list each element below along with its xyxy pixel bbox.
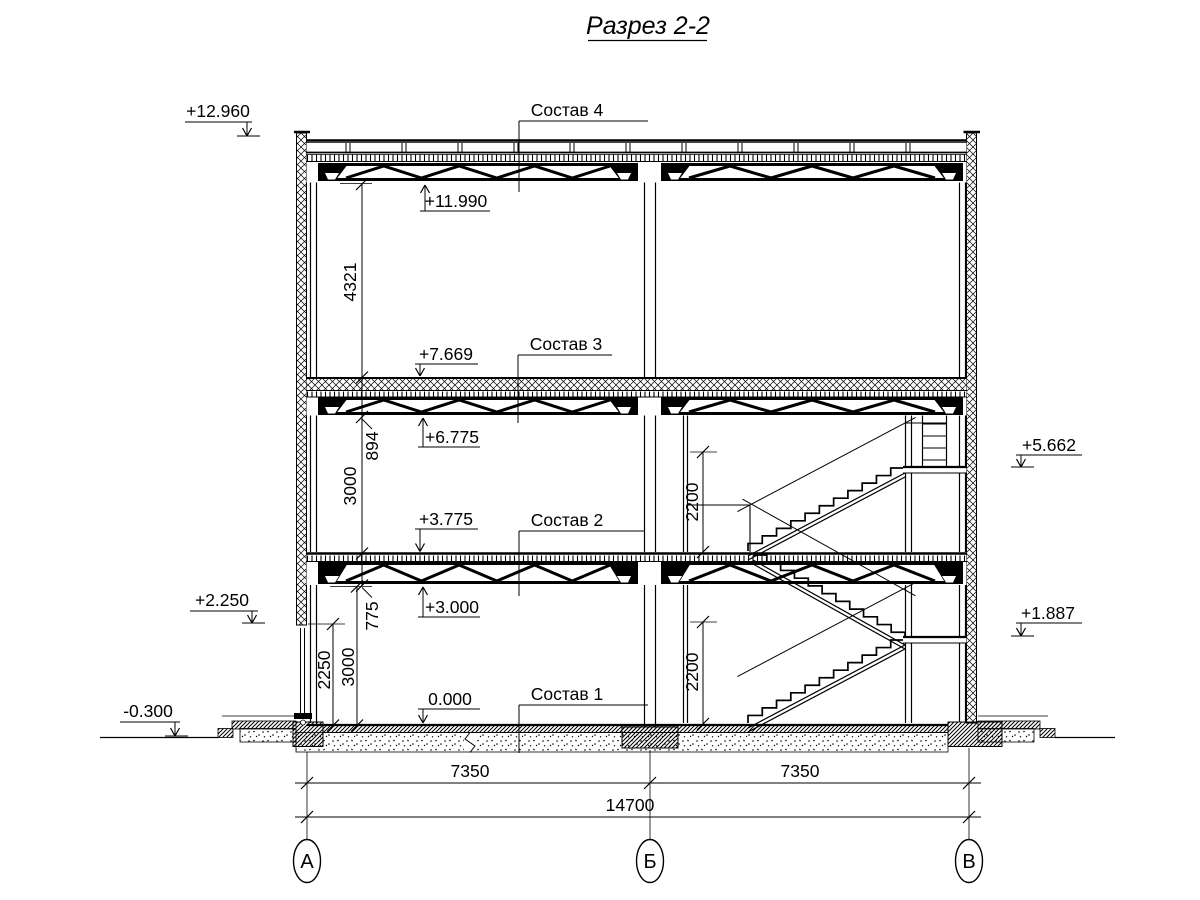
- elevation-label-5662: +5.662: [1022, 435, 1076, 455]
- composition-label-1: Состав 1: [531, 684, 604, 704]
- dim-label-3000-upper: 3000: [340, 466, 360, 505]
- composition-label-3: Состав 3: [530, 334, 603, 354]
- exterior-walls: [294, 132, 980, 725]
- elevation-label-m0300: -0.300: [123, 701, 173, 721]
- stair-flight: [737, 417, 915, 560]
- composition-leaders: [518, 121, 648, 753]
- dim-label-4321: 4321: [340, 263, 360, 302]
- span-label-total: 14700: [606, 795, 655, 815]
- elevation-marks: [120, 122, 1082, 736]
- span-label-right: 7350: [781, 761, 820, 781]
- floor-3-assembly: [307, 377, 967, 416]
- dim-label-775: 775: [362, 601, 382, 630]
- roof-assembly: [307, 139, 967, 183]
- elevation-label-2250: +2.250: [195, 590, 249, 610]
- drawing-title: Разрез 2-2: [586, 12, 710, 40]
- composition-label-4: Состав 4: [531, 100, 604, 120]
- elevation-label-11990: +11.990: [425, 191, 488, 211]
- dim-label-2200-lower: 2200: [682, 652, 702, 691]
- dim-label-2250: 2250: [314, 650, 334, 689]
- dim-label-894: 894: [362, 431, 382, 460]
- elevation-label-1887: +1.887: [1021, 603, 1075, 623]
- section-drawing: Разрез 2-2 +12.960 +11.990 +7.669 +6.775…: [0, 0, 1200, 900]
- dim-label-2200-upper: 2200: [682, 482, 702, 521]
- elevation-label-7669: +7.669: [419, 344, 473, 364]
- elevation-label-3000: +3.000: [425, 597, 479, 617]
- drawing-sheet: Разрез 2-2 +12.960 +11.990 +7.669 +6.775…: [0, 0, 1200, 900]
- axis-label-a: А: [300, 851, 314, 873]
- elevation-label-6775: +6.775: [425, 427, 479, 447]
- composition-label-2: Состав 2: [531, 510, 604, 530]
- elevation-label-0000: 0.000: [428, 689, 472, 709]
- elevation-label-12960: +12.960: [186, 101, 250, 121]
- elevation-label-3775: +3.775: [419, 509, 473, 529]
- axis-label-b: Б: [643, 851, 656, 873]
- ground-and-foundations: [100, 716, 1115, 753]
- dim-label-3000-lower: 3000: [338, 647, 358, 686]
- span-label-left: 7350: [451, 761, 490, 781]
- axis-label-v: В: [962, 851, 975, 873]
- columns: [311, 166, 966, 727]
